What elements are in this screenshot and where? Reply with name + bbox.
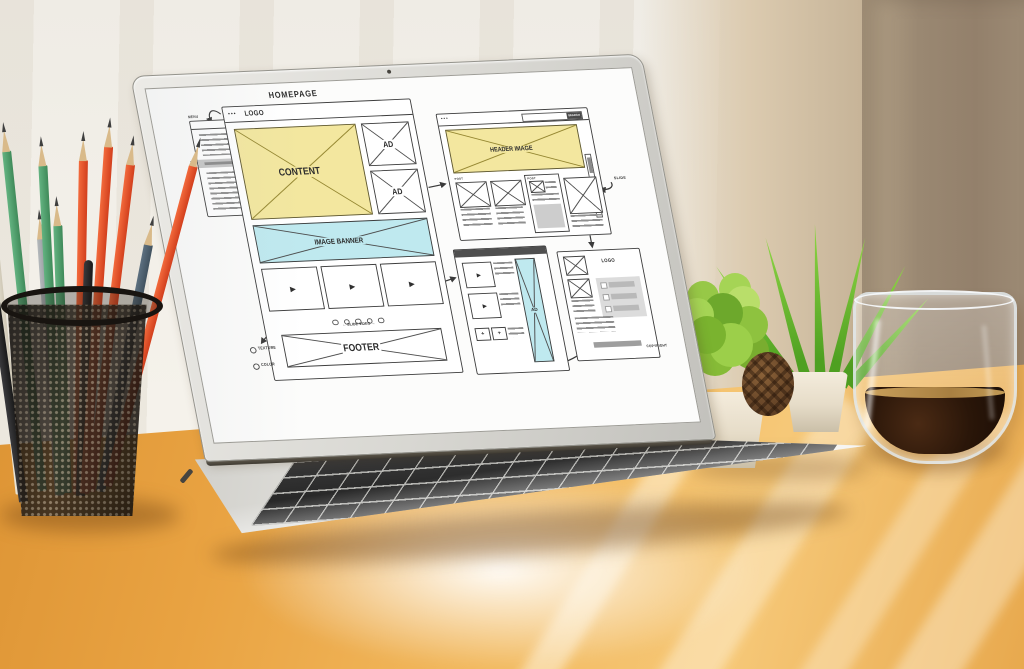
pinecone	[742, 352, 794, 416]
coffee-crema	[865, 387, 1005, 398]
mesh-cup-rim	[1, 286, 163, 326]
coffee-glass	[853, 292, 1017, 464]
screen-glare	[146, 68, 700, 443]
laptop-screen: HOMEPAGE MENU ► ••• LOGO	[144, 67, 701, 444]
mesh-cup-shading	[6, 296, 148, 516]
glass-rim	[854, 290, 1014, 310]
laptop-lid: HOMEPAGE MENU ► ••• LOGO	[130, 54, 717, 462]
coffee	[865, 387, 1005, 454]
webcam-icon	[387, 70, 392, 74]
desk-scene-photo: HOMEPAGE MENU ► ••• LOGO	[0, 0, 1024, 669]
